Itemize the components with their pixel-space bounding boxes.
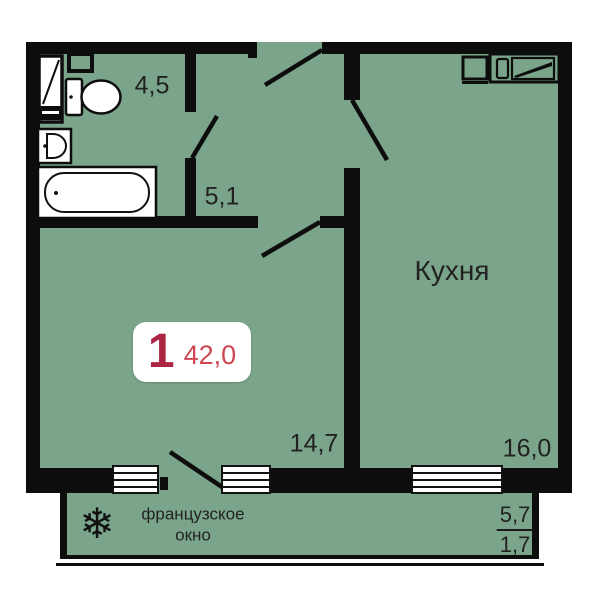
balcony-area-reduced: 1,7 xyxy=(497,531,534,556)
wall-right xyxy=(558,42,572,493)
wall-top-right xyxy=(322,42,572,54)
balcony-feature-line2: окно xyxy=(175,527,211,544)
wall-kitchen-stub xyxy=(344,54,360,100)
living-area-label: 14,7 xyxy=(290,432,339,457)
kitchen-sink-icon xyxy=(490,54,559,82)
wall-kitchen xyxy=(344,168,360,468)
wall-bottom-a xyxy=(26,468,113,493)
wall-bottom-c xyxy=(502,468,572,493)
stove-icon xyxy=(462,57,488,84)
window-living-left xyxy=(113,466,158,493)
door-stop-balcony xyxy=(160,477,168,490)
wall-bottom-b xyxy=(270,468,412,493)
wall-top-left xyxy=(26,42,255,54)
wall-bathroom-lower xyxy=(185,158,196,216)
balcony-area-fraction: 5,7 1,7 xyxy=(497,504,534,556)
window-living-right xyxy=(222,466,270,493)
washer-icon xyxy=(39,56,62,122)
bathtub-icon xyxy=(38,167,156,218)
bathroom-area-label: 4,5 xyxy=(135,74,170,99)
hallway-area-label: 5,1 xyxy=(205,185,240,210)
balcony-floor xyxy=(60,493,539,557)
balcony-area-total: 5,7 xyxy=(497,504,534,531)
window-kitchen xyxy=(412,466,502,493)
balcony-feature-line1: французское xyxy=(141,506,244,523)
sink-icon xyxy=(38,129,71,163)
wall-bathroom-upper xyxy=(185,54,196,112)
floor-plan: 4,5 5,1 14,7 Кухня 16,0 1 42,0 ❄ француз… xyxy=(0,0,600,600)
vent-shaft-icon xyxy=(69,54,92,71)
door-stop-entrance xyxy=(248,42,257,58)
rooms-count: 1 xyxy=(148,328,175,376)
apartment-badge: 1 42,0 xyxy=(133,322,251,382)
kitchen-fixtures xyxy=(462,54,559,84)
balcony-edge-bottom xyxy=(60,555,539,559)
balcony-edge-left xyxy=(60,493,67,558)
kitchen-name-label: Кухня xyxy=(415,257,490,285)
total-area: 42,0 xyxy=(184,336,237,369)
toilet-icon xyxy=(66,79,121,115)
snowflake-icon: ❄ xyxy=(79,503,114,545)
balcony-glazing-line xyxy=(56,563,544,566)
kitchen-area-label: 16,0 xyxy=(503,437,552,462)
